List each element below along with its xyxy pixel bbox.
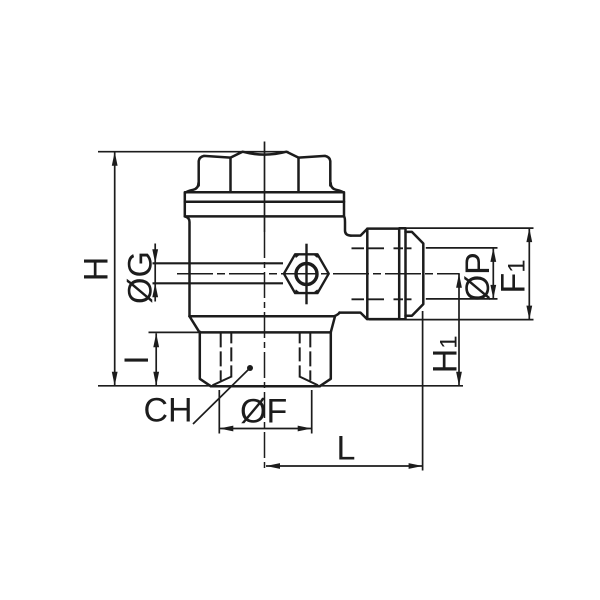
svg-text:ØF: ØF [240,393,287,431]
svg-text:H: H [78,257,116,282]
svg-text:L: L [337,430,356,468]
svg-text:CH: CH [144,392,193,430]
svg-text:I: I [118,355,156,364]
svg-text:ØG: ØG [122,251,160,304]
svg-text:ØP: ØP [459,252,497,301]
